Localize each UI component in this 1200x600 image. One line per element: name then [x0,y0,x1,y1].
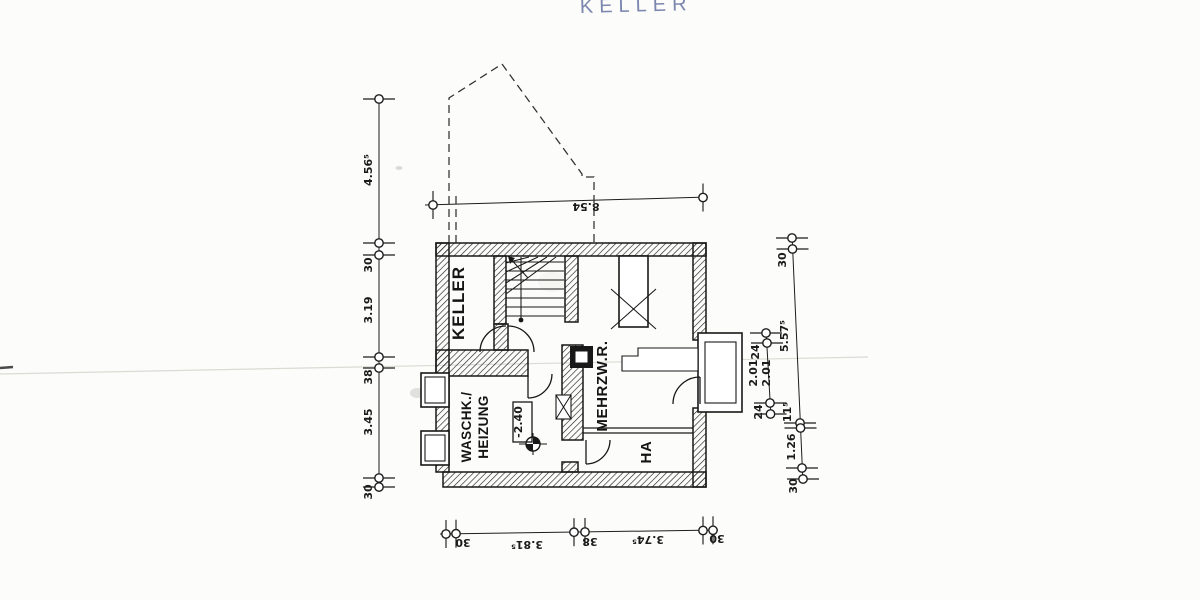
dimension-top: 8.54 [425,184,708,220]
dimension-right-outer: 30 5.57⁵ 11⁵ 1.26 30 [776,234,819,494]
floor-level-value: -2.40 [512,406,525,438]
dimension-bottom: 30 3.81⁵ 38 3.74⁵ 30 [440,516,725,551]
door-arc-hall-right [508,326,534,352]
room-label-hausanschluss: HA [638,441,655,464]
staircase [506,256,564,322]
dim-bottom-0: 30 [455,536,471,549]
dim-left-2: 3.19 [362,296,375,323]
wall-stairwell [494,256,506,324]
dim-rin-1: 2.01 [747,359,760,386]
floor-plan-drawing: 4.56⁵ 30 3.19 38 3.45 30 8.54 30 3.81⁵ 3… [0,0,1200,600]
dashed-building-outline [449,64,594,243]
room-label-mehrzweckraum: MEHRZW.R. [594,340,611,431]
wall-stair-divider [565,256,578,322]
dim-rin-2: 2.01 [760,359,773,386]
wall-right-upper [693,243,706,340]
dim-left-0: 4.56⁵ [362,154,375,186]
dim-bottom-1: 3.81⁵ [511,538,543,551]
dim-bottom-2: 38 [582,535,597,548]
cellar-access-step [622,348,698,371]
handwritten-title-group: KELLER [580,0,693,18]
dimension-left: 4.56⁵ 30 3.19 38 3.45 30 [362,95,395,500]
wall-top [436,243,706,256]
room-label-waschk-line1: WASCHK./ [459,392,474,463]
room-label-waschk-line2: HEIZUNG [476,395,491,459]
wall-bottom [443,472,706,487]
dim-rout-2: 11⁵ [781,402,794,422]
dim-left-3: 38 [362,369,375,384]
chimney-shaft [619,256,648,327]
dim-rout-1: 5.57⁵ [778,320,791,352]
dim-rin-3: 24 [752,404,765,420]
dim-rout-3: 1.26 [785,433,798,460]
door-arc-ha [586,440,610,464]
right-lightwell [698,333,742,412]
dim-rin-0: 24 [749,344,762,360]
dim-bottom-3: 3.74⁵ [632,533,664,546]
wall-stub-lower [562,462,578,472]
scanned-floor-plan-page: 4.56⁵ 30 3.19 38 3.45 30 8.54 30 3.81⁵ 3… [0,0,1200,600]
dim-left-4: 3.45 [362,408,375,435]
dim-left-1: 30 [362,257,375,273]
dim-top-0: 8.54 [572,200,599,213]
dim-left-5: 30 [362,484,375,500]
room-label-keller: KELLER [449,266,468,340]
handwritten-title: KELLER [580,0,693,18]
dim-bottom-4: 30 [709,532,725,545]
door-arc-exterior [673,377,700,404]
door-arc-waschkueche [528,374,552,398]
dim-rout-4: 30 [787,478,800,494]
dim-rout-0: 30 [776,252,789,268]
wall-mid-band [436,350,528,376]
